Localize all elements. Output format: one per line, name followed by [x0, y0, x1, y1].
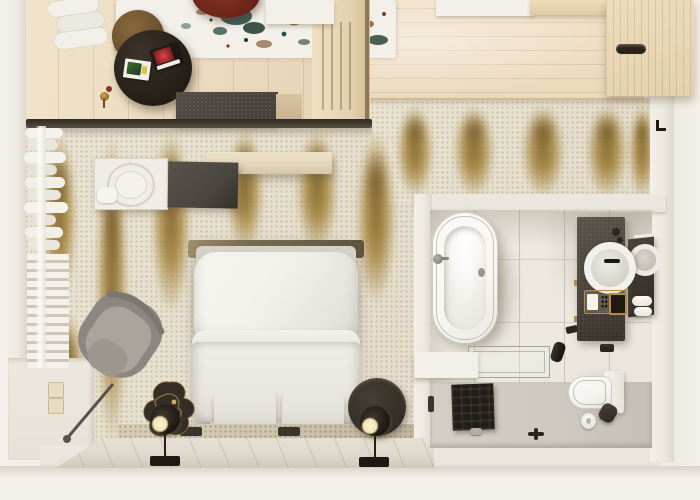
towel-roll-2 [634, 307, 652, 316]
carpet-gold-streak [452, 102, 496, 200]
amenity-buttons [601, 295, 608, 309]
sink-faucet [604, 259, 620, 263]
vanity-counter [577, 217, 625, 341]
gold-figurine [96, 84, 114, 108]
floor-lamp-right-base [359, 457, 389, 467]
figurine-accent [106, 86, 112, 92]
toilet-seat [573, 380, 606, 405]
entry-door [436, 0, 534, 16]
hall-counter [530, 0, 610, 15]
wardrobe [606, 0, 694, 96]
soap-item-1 [612, 228, 620, 236]
window-frame [36, 126, 46, 368]
carpet-gold-streak [520, 102, 566, 200]
floor-lamp-right-glow [362, 418, 378, 434]
shelf-cloth [97, 187, 117, 203]
bathtub-basin [444, 226, 486, 330]
towel-roll-1 [632, 296, 652, 306]
carpet-gold-streak [395, 102, 435, 200]
curtain-folds [48, 0, 112, 58]
shelf-unit [94, 158, 168, 210]
soap-item-2 [617, 237, 623, 243]
magazine-green-cover [126, 62, 142, 76]
figurine-stem [103, 99, 105, 108]
shower-mat [451, 383, 495, 430]
mat-item [470, 428, 482, 435]
outer-background-right [672, 96, 700, 500]
magazine-green [123, 58, 151, 80]
floor-drain-stem [534, 428, 538, 440]
media-panel [168, 161, 239, 208]
door-ledge [414, 352, 478, 378]
outer-background-bottom [0, 466, 700, 500]
amenity-tray [584, 290, 626, 314]
lounge-bench-end [276, 94, 302, 122]
floor-lamp-left-glow [152, 416, 168, 432]
toilet-paper-core [586, 418, 591, 424]
bathtub [432, 212, 498, 344]
floor-lamp-left-base [150, 456, 180, 466]
tp-holder [600, 344, 614, 352]
shower-bench-glass [468, 346, 550, 378]
vanity-hinge-2 [574, 316, 577, 322]
amenity-box [609, 293, 627, 315]
magazine-green-accent [141, 66, 147, 75]
sink [584, 242, 636, 294]
wall-tap-spout [656, 128, 666, 131]
floor-lamp-left-stem [164, 432, 166, 458]
window-curtains [24, 126, 70, 254]
partition-top-cabinet [266, 0, 334, 24]
carpet-gold-streak [585, 102, 629, 200]
shower-bench-inner [473, 351, 545, 373]
ledge-slot-right [278, 427, 300, 436]
wardrobe-handle [616, 44, 646, 54]
carpet-gold-streak [355, 126, 397, 308]
room-render [0, 0, 700, 500]
carpet-gold-streak [295, 126, 339, 256]
tub-faucet-spout [441, 257, 449, 260]
bathroom-door-handle [428, 396, 434, 412]
curtain-folds-vertical [24, 126, 70, 254]
partition-edge [365, 0, 369, 124]
partition-slats [322, 22, 354, 110]
amenity-card [587, 294, 598, 310]
vanity-hinge-1 [574, 280, 577, 286]
tub-drain [478, 268, 485, 277]
curtain-top-left [48, 0, 112, 58]
room-divider [26, 119, 372, 128]
